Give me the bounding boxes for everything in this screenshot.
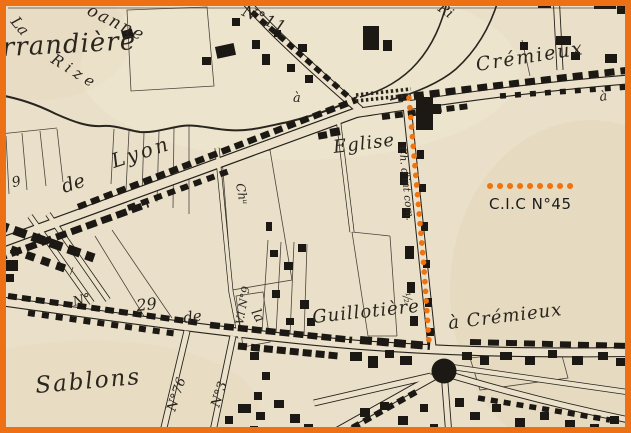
legend-label: C.I.C N°45: [489, 195, 571, 213]
historical-map-figure: La errandière oanne N°11 Rize Ri de Lyon…: [0, 0, 631, 433]
map-image: La errandière oanne N°11 Rize Ri de Lyon…: [0, 0, 631, 433]
plaza-circle: [432, 359, 457, 384]
label-de-guillotiere-de: de: [182, 307, 203, 327]
label-a-center: à: [293, 91, 301, 106]
label-n29-num: 29: [134, 294, 157, 315]
